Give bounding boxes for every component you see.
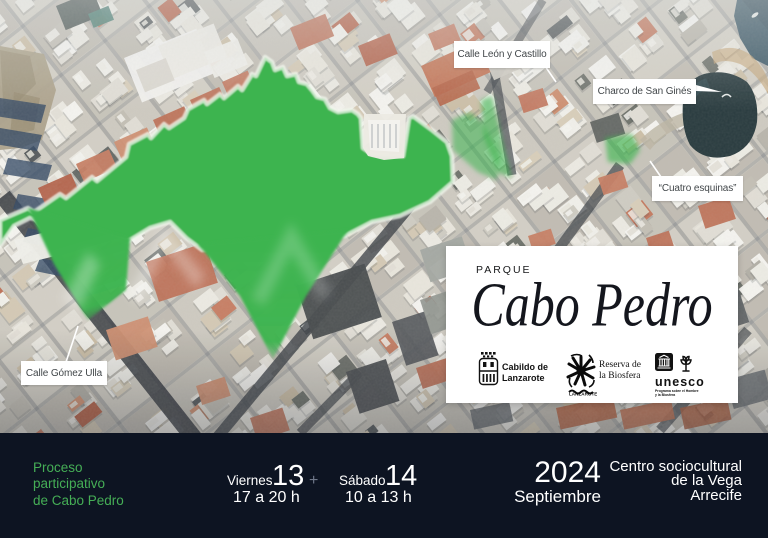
svg-text:unesco: unesco: [655, 375, 705, 389]
svg-text:LANZAROTE: LANZAROTE: [569, 392, 597, 397]
svg-text:y la Biosfera: y la Biosfera: [655, 393, 675, 397]
